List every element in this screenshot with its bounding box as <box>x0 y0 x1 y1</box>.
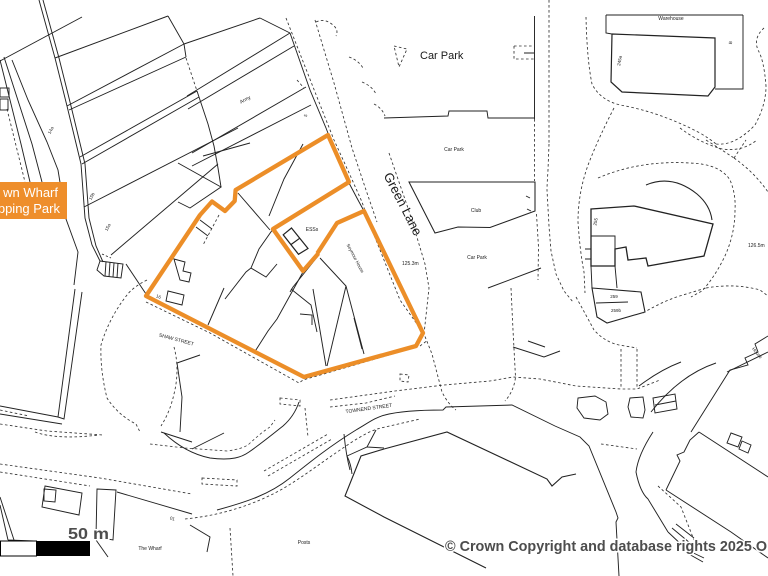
svg-text:125.3m: 125.3m <box>402 261 419 267</box>
svg-text:pping Park: pping Park <box>0 201 60 216</box>
svg-text:ESSs: ESSs <box>306 227 319 233</box>
svg-text:50 m: 50 m <box>68 526 109 543</box>
svg-text:Car Park: Car Park <box>420 50 464 62</box>
svg-text:Posts: Posts <box>298 540 311 546</box>
svg-text:259b: 259b <box>611 308 622 313</box>
svg-text:126.5m: 126.5m <box>748 243 765 249</box>
svg-text:Club: Club <box>471 208 482 214</box>
svg-text:The Wharf: The Wharf <box>138 546 162 552</box>
svg-text:© Crown Copyright and database: © Crown Copyright and database rights 20… <box>445 538 767 555</box>
svg-text:Car Park: Car Park <box>444 147 464 153</box>
svg-text:259: 259 <box>610 294 618 299</box>
svg-text:Car Park: Car Park <box>467 255 487 261</box>
svg-text:Warehouse: Warehouse <box>658 16 684 22</box>
svg-text:wn Wharf: wn Wharf <box>2 185 58 200</box>
